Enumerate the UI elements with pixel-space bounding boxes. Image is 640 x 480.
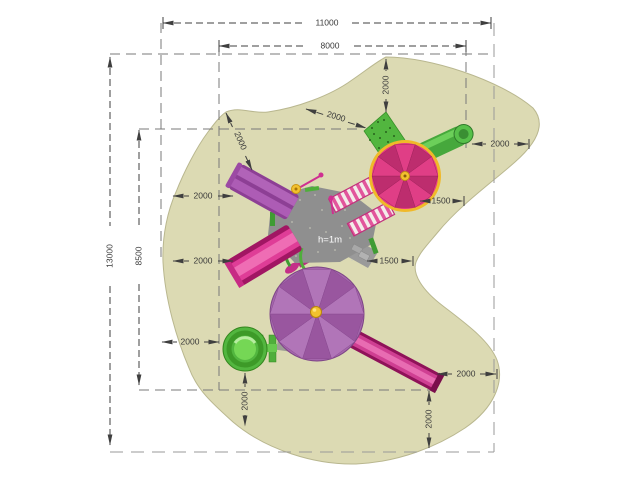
platform-height-label: h=1m	[318, 235, 342, 246]
dim-top-inner-label: 8000	[321, 40, 340, 50]
dim-left-outer-label: 13000	[104, 244, 114, 268]
umbrella	[270, 267, 364, 361]
dim-right-1500b-label: 1500	[380, 255, 399, 265]
umbrella-hub	[311, 307, 322, 318]
platform-post-green	[270, 212, 275, 226]
dim-bottom-right-vertical-label: 2000	[423, 409, 433, 428]
dim-bottom-right-horizontal-label: 2000	[457, 368, 476, 378]
playground-plan-canvas: h=1m 11000 8000 13000 8500 2000 2000 200…	[0, 0, 640, 480]
carousel-hub-center	[404, 175, 407, 178]
flag-pole-tip	[319, 173, 324, 178]
carousel	[369, 140, 441, 212]
dim-bottom-left-vertical-label: 2000	[239, 391, 249, 410]
plan-drawing: h=1m 11000 8000 13000 8500 2000 2000 200…	[0, 0, 640, 480]
flower-knob-center	[295, 188, 298, 191]
dim-left-middle-label: 2000	[194, 255, 213, 265]
dim-left-upper-label: 2000	[194, 190, 213, 200]
dim-right-top-label: 2000	[491, 138, 510, 148]
dim-top-outer-label: 11000	[315, 17, 338, 27]
dim-left-lower-label: 2000	[181, 336, 200, 346]
dim-top-vertical-label: 2000	[380, 75, 390, 94]
dim-left-inner-label: 8500	[133, 246, 143, 265]
umbrella-hub-highlight	[313, 308, 317, 312]
post-pole-tip	[329, 196, 334, 201]
dim-right-1500a-label: 1500	[432, 195, 451, 205]
